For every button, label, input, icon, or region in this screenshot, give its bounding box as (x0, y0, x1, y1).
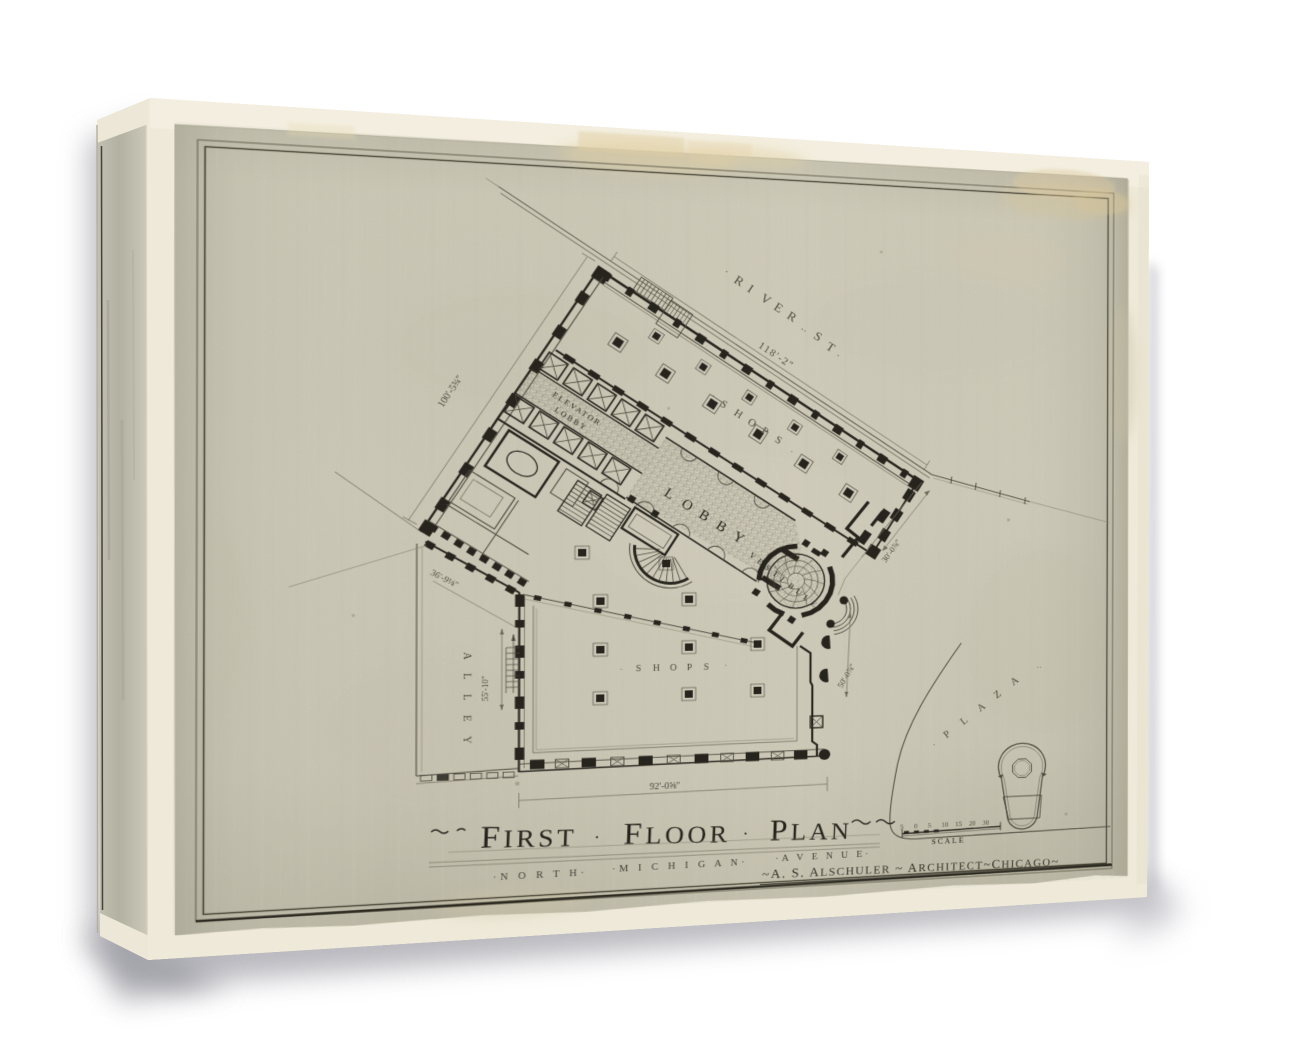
svg-text:·: · (933, 740, 936, 749)
svg-text:92′-0⅝″: 92′-0⅝″ (650, 782, 681, 792)
svg-text:5: 5 (928, 822, 932, 829)
svg-text:·: · (594, 828, 601, 847)
svg-text:Y: Y (461, 736, 474, 744)
svg-text:0: 0 (914, 822, 918, 829)
svg-text:L: L (461, 694, 474, 701)
svg-text:L: L (461, 673, 474, 680)
svg-text:O: O (670, 664, 677, 673)
svg-text:·: · (620, 665, 623, 673)
svg-text:20: 20 (969, 820, 976, 828)
svg-text:··: ·· (1036, 663, 1041, 672)
svg-text:30: 30 (982, 819, 989, 827)
svg-text:S: S (636, 664, 641, 673)
svg-text:·: · (742, 825, 749, 843)
svg-text:P: P (687, 663, 692, 672)
svg-text:H: H (653, 664, 660, 673)
svg-text:10: 10 (941, 821, 948, 829)
svg-text:E: E (461, 715, 474, 722)
svg-text:A: A (461, 652, 474, 660)
svg-text:5: 5 (900, 823, 904, 831)
svg-text:·: · (724, 661, 727, 669)
svg-text:S: S (704, 663, 709, 672)
svg-text:15: 15 (955, 820, 962, 828)
svg-text:55′-10″: 55′-10″ (480, 676, 491, 702)
